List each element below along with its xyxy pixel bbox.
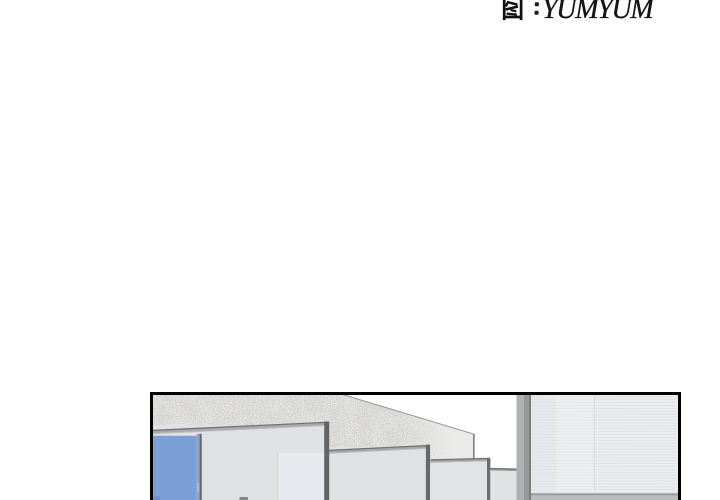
svg-text:YUMYUM: YUMYUM [542, 0, 655, 25]
